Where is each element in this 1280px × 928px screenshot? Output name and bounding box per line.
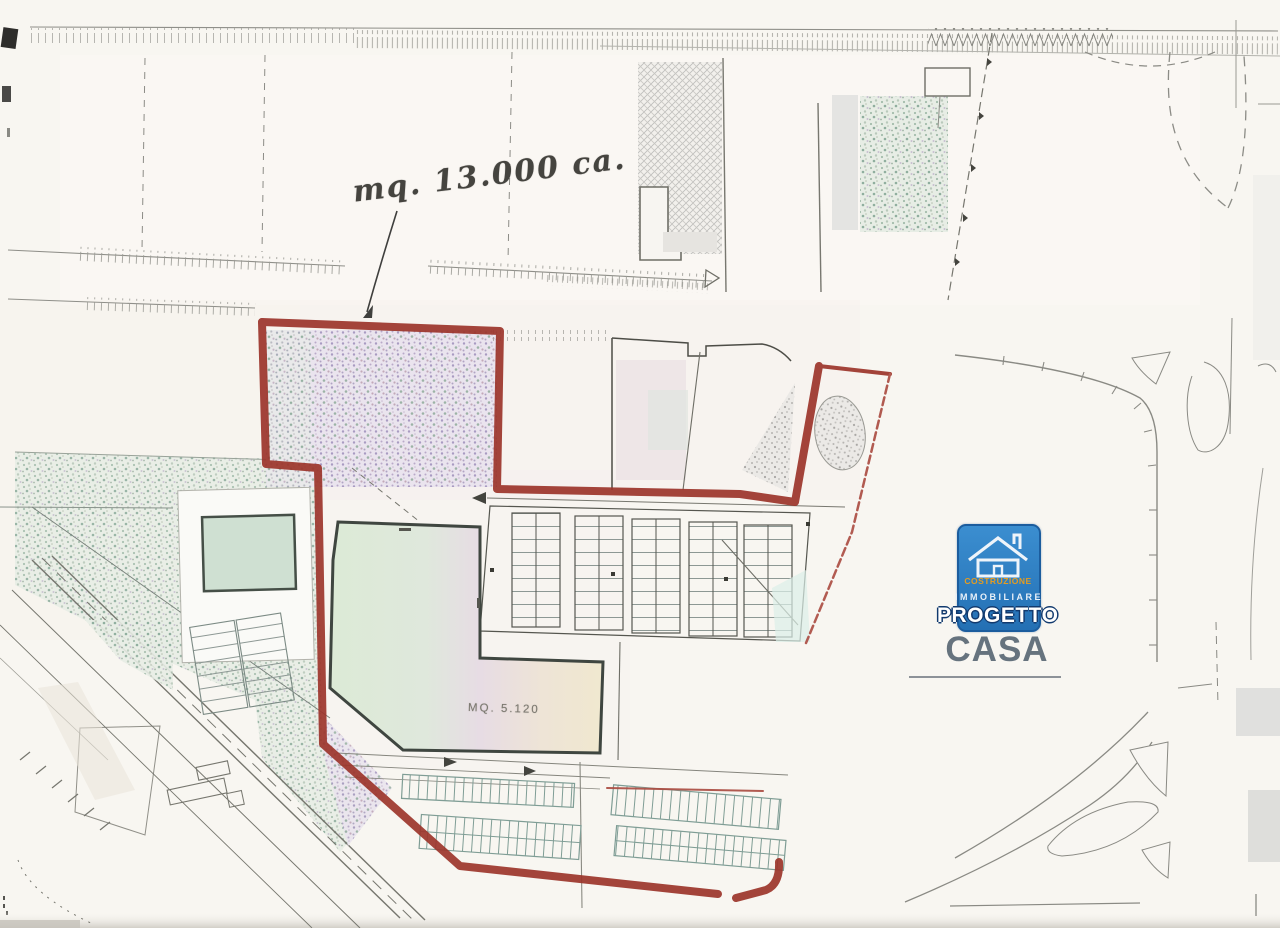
scanned-site-plan-page: mq. 13.000 ca. MQ. 5.120 COSTRUZIONE IMM… [0, 0, 1280, 928]
logo-line-immobiliare: IMMOBILIARE [955, 592, 1041, 602]
parking-bay [632, 519, 680, 633]
parking-bay [689, 522, 737, 636]
logo-underline [909, 676, 1061, 678]
company-logo: COSTRUZIONE IMMOBILIARE PROGETTO CASA [935, 516, 1059, 680]
house-icon [965, 532, 1031, 578]
small-building-footprint [202, 515, 296, 591]
building-area-label: MQ. 5.120 [468, 702, 540, 716]
parking-bay [512, 513, 560, 627]
parking-bay [575, 516, 623, 630]
logo-line-casa: CASA [927, 630, 1067, 670]
site-plan-drawing [0, 0, 1280, 928]
logo-line-progetto: PROGETTO [937, 604, 1057, 628]
logo-line-costruzione: COSTRUZIONE [957, 576, 1039, 586]
